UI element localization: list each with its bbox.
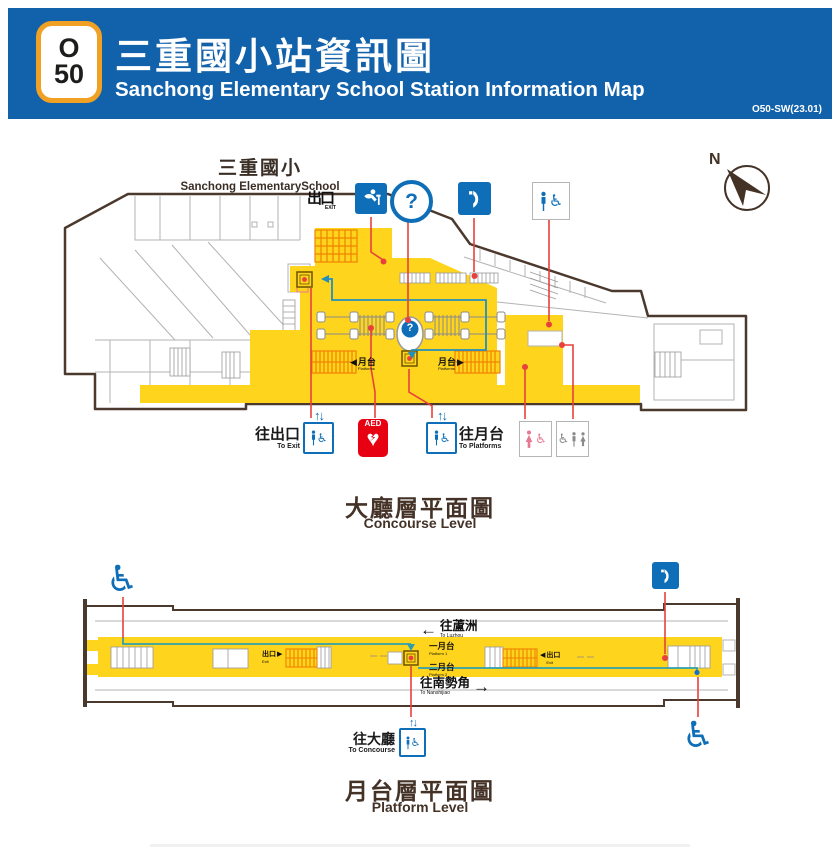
landmark-label: 三重國小 Sanchong ElementarySchool xyxy=(180,153,340,193)
exit-sign-zh: 出口 xyxy=(304,191,336,206)
to-concourse-en: To Concourse xyxy=(340,747,395,755)
to-nanshijiao-en: To Nanshijiao xyxy=(420,690,470,696)
right-arrow-icon: ▶ xyxy=(277,650,282,660)
public-telephone-icon xyxy=(652,562,679,589)
platform-exit-label-left: 出口 Exit ▶ xyxy=(262,650,282,664)
person-dress-glyph xyxy=(524,430,534,449)
person-glyph xyxy=(539,191,548,212)
up-down-arrows-icon: ↑↓ xyxy=(409,718,416,728)
up-down-arrows-icon: ↑↓ xyxy=(437,410,446,422)
info-counter-question: ? xyxy=(402,322,418,334)
to-concourse-zh: 往大廳 xyxy=(340,731,395,747)
platform-end-room xyxy=(723,640,735,651)
platform2-label: 二月台 Platform 2 xyxy=(429,663,455,677)
telephone-glyph xyxy=(657,567,675,585)
landmark-zh: 三重國小 xyxy=(180,153,340,180)
right-arrow-icon: → xyxy=(473,679,490,695)
up-down-arrows-icon: ↑↓ xyxy=(314,410,323,422)
page-title-zh: 三重國小站資訊圖 xyxy=(115,26,435,80)
exit-en: Exit xyxy=(262,660,276,664)
platform2-zh: 二月台 xyxy=(429,663,455,672)
wheelchair-glyph: ♿ xyxy=(535,431,547,447)
to-concourse-label: 往大廳 To Concourse xyxy=(340,731,395,755)
gate-label-en: Platforms xyxy=(438,367,456,371)
elevator-to-concourse-icon: ↑↓ ♿ xyxy=(399,718,426,757)
station-number: 50 xyxy=(54,62,84,88)
wheelchair-access-icon: ♿ xyxy=(106,558,138,600)
accessible-restroom-icon: ♿ xyxy=(532,182,570,220)
platform1-zh: 一月台 xyxy=(429,642,455,651)
lightning-glyph: ⚡ xyxy=(369,429,376,449)
wheelchair-glyph: ♿ xyxy=(440,431,451,445)
to-platforms-zh: 往月台 xyxy=(459,427,504,443)
question-glyph: ? xyxy=(405,190,418,214)
wheelchair-glyph: ♿ xyxy=(317,431,328,445)
telephone-glyph xyxy=(464,188,486,210)
to-luzhou-label: ← 往蘆洲 To Luzhou xyxy=(420,620,478,639)
family-accessible-restroom-icon: ♿ xyxy=(556,421,589,457)
platform1-en: Platform 1 xyxy=(429,651,455,656)
wheelchair-glyph: ♿ xyxy=(549,191,563,211)
station-information-map: O 50 三重國小站資訊圖 Sanchong Elementary School… xyxy=(0,0,840,847)
right-arrow-icon: ▶ xyxy=(457,357,464,367)
to-exit-en: To Exit xyxy=(246,443,300,451)
person-glyph xyxy=(433,430,440,446)
version-code: O50-SW(23.01) xyxy=(752,104,822,115)
aed-icon: AED ♥ ⚡ xyxy=(358,419,388,457)
to-luzhou-zh: 往蘆洲 xyxy=(440,620,478,633)
gate-label-right: 月台 Platforms ▶ xyxy=(438,357,464,371)
concourse-section-title-en: Concourse Level xyxy=(0,515,840,531)
exit-en: Exit xyxy=(546,661,560,665)
public-telephone-icon xyxy=(458,182,491,215)
to-exit-zh: 往出口 xyxy=(246,427,300,443)
left-arrow-icon: ◀ xyxy=(350,357,357,367)
platform-end-wall-left xyxy=(83,599,87,707)
restroom-inner-room xyxy=(528,331,562,346)
left-arrow-icon: ← xyxy=(420,622,437,638)
to-platforms-en: To Platforms xyxy=(459,443,504,451)
gate-label-left: ◀ 月台 Platforms xyxy=(350,357,376,371)
header-banner: O 50 三重國小站資訊圖 Sanchong Elementary School… xyxy=(8,8,832,119)
wheelchair-access-icon: ♿ xyxy=(682,714,714,756)
person-dress-glyph xyxy=(579,432,587,447)
elevator-to-exit-icon: ↑↓ ♿ xyxy=(303,410,334,454)
concourse-floor-plan xyxy=(65,194,746,419)
concourse-restroom-block xyxy=(505,315,563,400)
to-nanshijiao-label: 往南勢角 To Nanshijiao → xyxy=(420,677,490,696)
to-platforms-label: 往月台 To Platforms xyxy=(459,427,504,451)
person-glyph xyxy=(310,430,317,446)
north-compass-icon xyxy=(725,166,769,210)
to-nanshijiao-zh: 往南勢角 xyxy=(420,677,470,690)
platform-section-title-en: Platform Level xyxy=(0,799,840,815)
womens-accessible-restroom-icon: ♿ xyxy=(519,421,552,457)
platform-end-wall-right xyxy=(736,598,740,708)
left-arrow-icon: ◀ xyxy=(540,651,545,661)
platform-elevator xyxy=(404,651,418,665)
elevator-to-platforms-icon: ↑↓ ♿ xyxy=(426,410,457,454)
wheelchair-glyph: ♿ xyxy=(682,714,714,755)
north-label: N xyxy=(709,151,721,169)
station-code-badge: O 50 xyxy=(36,21,102,103)
platform1-label: 一月台 Platform 1 xyxy=(429,642,455,656)
platform-floor-plan xyxy=(83,592,740,717)
drinking-fountain-icon xyxy=(355,183,387,214)
page-title-en: Sanchong Elementary School Station Infor… xyxy=(115,78,645,102)
person-glyph xyxy=(570,432,578,447)
ticket-machines xyxy=(400,273,498,283)
gate-label-en: Platforms xyxy=(358,367,376,371)
to-luzhou-en: To Luzhou xyxy=(440,633,478,639)
wheelchair-glyph: ♿ xyxy=(411,736,421,749)
exit-sign: 出口 EXIT xyxy=(304,191,336,211)
to-exit-label: 往出口 To Exit xyxy=(246,427,300,451)
platform-end-room xyxy=(723,664,735,675)
wheelchair-glyph: ♿ xyxy=(558,431,570,447)
drinking-fountain-glyph xyxy=(360,187,383,210)
information-icon: ? xyxy=(390,180,433,223)
wheelchair-glyph: ♿ xyxy=(106,558,138,599)
platform-exit-label-right: ◀ 出口 Exit xyxy=(540,651,560,665)
